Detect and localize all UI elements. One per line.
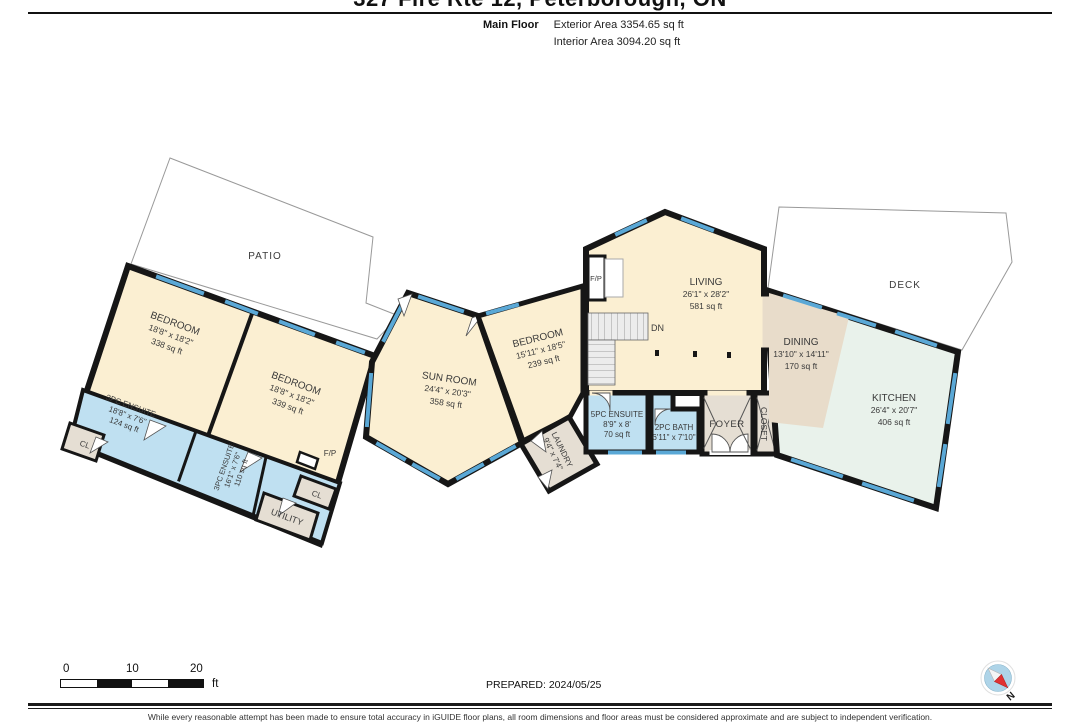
scale-tick-20: 20	[190, 663, 203, 675]
floor-plan: PATIO DECK BEDROOM 18'8" x 18'2" 338 sq …	[0, 0, 1080, 720]
scale-tick-10: 10	[126, 663, 139, 675]
bath2pc-label: 2PC BATH 6'11" x 7'10"	[652, 423, 695, 442]
compass-icon: N	[972, 656, 1026, 710]
floor-label: Main Floor	[483, 19, 539, 53]
prepared-date: PREPARED: 2024/05/25	[486, 679, 601, 691]
living-shape	[586, 212, 764, 393]
svg-text:2PC BATH: 2PC BATH	[655, 423, 694, 432]
closet-c-label: CLOSET	[759, 407, 769, 441]
svg-text:5PC ENSUITE: 5PC ENSUITE	[591, 410, 643, 419]
fireplace-a-label: F/P	[324, 449, 336, 458]
page-title: 327 Fire Rte 12, Peterborough, ON	[0, 0, 1080, 11]
svg-text:170 sq ft: 170 sq ft	[785, 361, 818, 371]
svg-text:406 sq ft: 406 sq ft	[878, 417, 911, 427]
svg-text:581 sq ft: 581 sq ft	[690, 301, 723, 311]
floor-info: Main Floor Exterior Area 3354.65 sq ft I…	[483, 19, 684, 53]
patio-label: PATIO	[248, 251, 282, 262]
svg-text:26'4" x 20'7": 26'4" x 20'7"	[871, 405, 918, 415]
scale-bar: 0 10 20 ft	[60, 663, 290, 686]
disclaimer-text: While every reasonable attempt has been …	[0, 712, 1080, 722]
svg-text:8'9" x 8': 8'9" x 8'	[603, 420, 631, 429]
interior-area: Interior Area 3094.20 sq ft	[554, 36, 684, 48]
scale-tick-0: 0	[63, 663, 69, 675]
svg-text:26'1" x 28'2": 26'1" x 28'2"	[683, 289, 730, 299]
stairs-dn-label: DN	[651, 323, 664, 333]
foyer-label: FOYER	[709, 419, 744, 430]
footer-divider	[28, 703, 1052, 709]
fireplace-b-label: F/P	[590, 274, 602, 283]
exterior-area: Exterior Area 3354.65 sq ft	[554, 19, 684, 31]
deck-label: DECK	[889, 280, 921, 291]
svg-text:DINING: DINING	[784, 337, 819, 348]
compass-n-label: N	[1005, 690, 1018, 703]
svg-text:70 sq ft: 70 sq ft	[604, 430, 631, 439]
svg-text:13'10" x 14'11": 13'10" x 14'11"	[773, 349, 828, 359]
svg-text:KITCHEN: KITCHEN	[872, 393, 916, 404]
header-divider	[28, 12, 1052, 14]
svg-text:6'11" x 7'10": 6'11" x 7'10"	[652, 433, 695, 442]
scale-unit: ft	[212, 678, 218, 690]
scale-bar-segments	[60, 679, 204, 688]
svg-text:LIVING: LIVING	[690, 277, 723, 288]
